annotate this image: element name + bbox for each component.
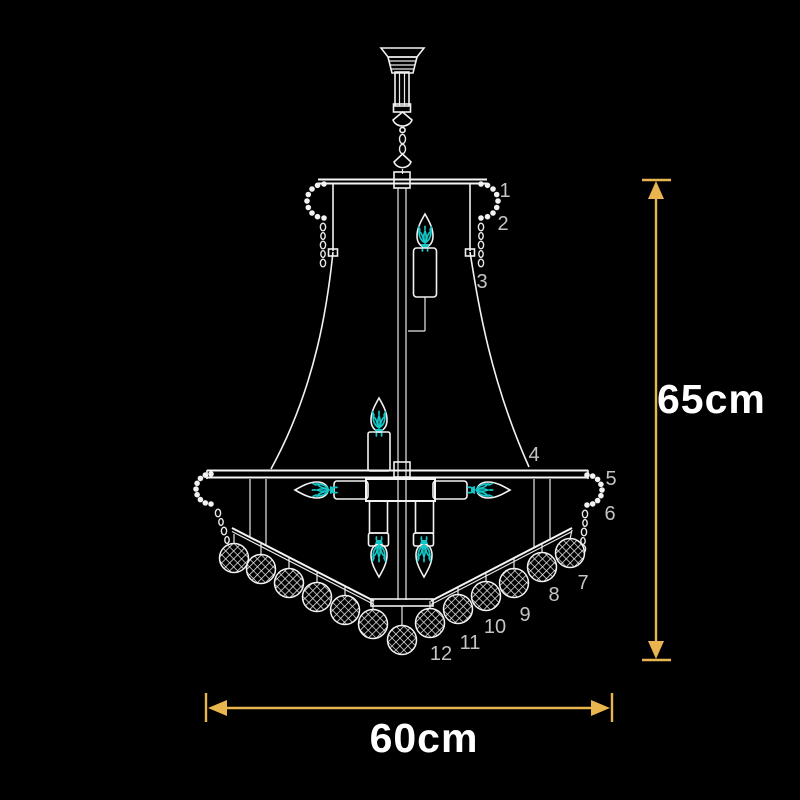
part-label-2: 2: [497, 213, 508, 235]
part-label-9: 9: [519, 604, 530, 626]
crystal-ball: [359, 610, 388, 639]
arrow-right-icon: [591, 700, 610, 716]
top-left-bead-chain: [320, 223, 325, 267]
crystal-ball: [472, 582, 501, 611]
flame-icon: [468, 484, 493, 497]
width-dimension: 60cm: [206, 693, 612, 761]
height-dimension-label: 65cm: [657, 376, 766, 422]
center-hub-assembly: [366, 479, 435, 533]
crystal-ball: [275, 569, 304, 598]
arrow-up-icon: [648, 181, 664, 199]
crystal-ball: [331, 596, 360, 625]
flame-icon: [373, 537, 386, 562]
right-down-candle-lamp: [414, 533, 434, 577]
ceiling-canopy: [381, 48, 424, 73]
part-label-1: 1: [499, 180, 510, 202]
chandelier-drawing: 1 2 3 4 5 6 7 8 9 10 11 12 65cm 60cm: [0, 0, 800, 800]
middle-candle-lamp: [368, 398, 390, 471]
frame-profile-wires: [271, 252, 529, 469]
part-label-6: 6: [604, 503, 615, 525]
height-dimension: 65cm: [642, 180, 766, 660]
part-label-10: 10: [484, 616, 506, 638]
left-horizontal-candle-lamp: [295, 481, 368, 499]
upper-candle-lamp: [408, 214, 437, 331]
top-right-bead-chain: [478, 223, 483, 267]
crystal-ball: [528, 553, 557, 582]
part-label-8: 8: [548, 584, 559, 606]
crystal-ball: [247, 555, 276, 584]
right-horizontal-candle-lamp: [433, 481, 510, 499]
product-dimension-diagram: 1 2 3 4 5 6 7 8 9 10 11 12 65cm 60cm: [0, 0, 800, 800]
top-ring: [318, 172, 487, 256]
top-left-scallop-ring: [304, 181, 327, 221]
mid-right-scallop-ring: [584, 472, 605, 508]
crystal-ball: [556, 539, 585, 568]
part-label-4: 4: [528, 444, 539, 466]
arrow-down-icon: [648, 641, 664, 659]
left-down-candle-lamp: [369, 533, 389, 577]
hanging-rod-and-chain: [393, 72, 412, 174]
crystal-ball: [303, 583, 332, 612]
mid-left-scallop-ring: [193, 471, 214, 507]
crystal-ball: [388, 626, 417, 655]
part-label-5: 5: [605, 468, 616, 490]
crystal-ball: [220, 544, 249, 573]
flame-icon: [418, 537, 431, 562]
width-dimension-label: 60cm: [370, 715, 479, 761]
crystal-ball: [416, 609, 445, 638]
central-column: [394, 188, 410, 600]
crystal-ball: [500, 569, 529, 598]
part-label-12: 12: [430, 643, 452, 665]
part-label-11: 11: [460, 632, 481, 654]
part-label-3: 3: [476, 271, 487, 293]
part-label-7: 7: [577, 572, 588, 594]
crystal-ball: [444, 595, 473, 624]
